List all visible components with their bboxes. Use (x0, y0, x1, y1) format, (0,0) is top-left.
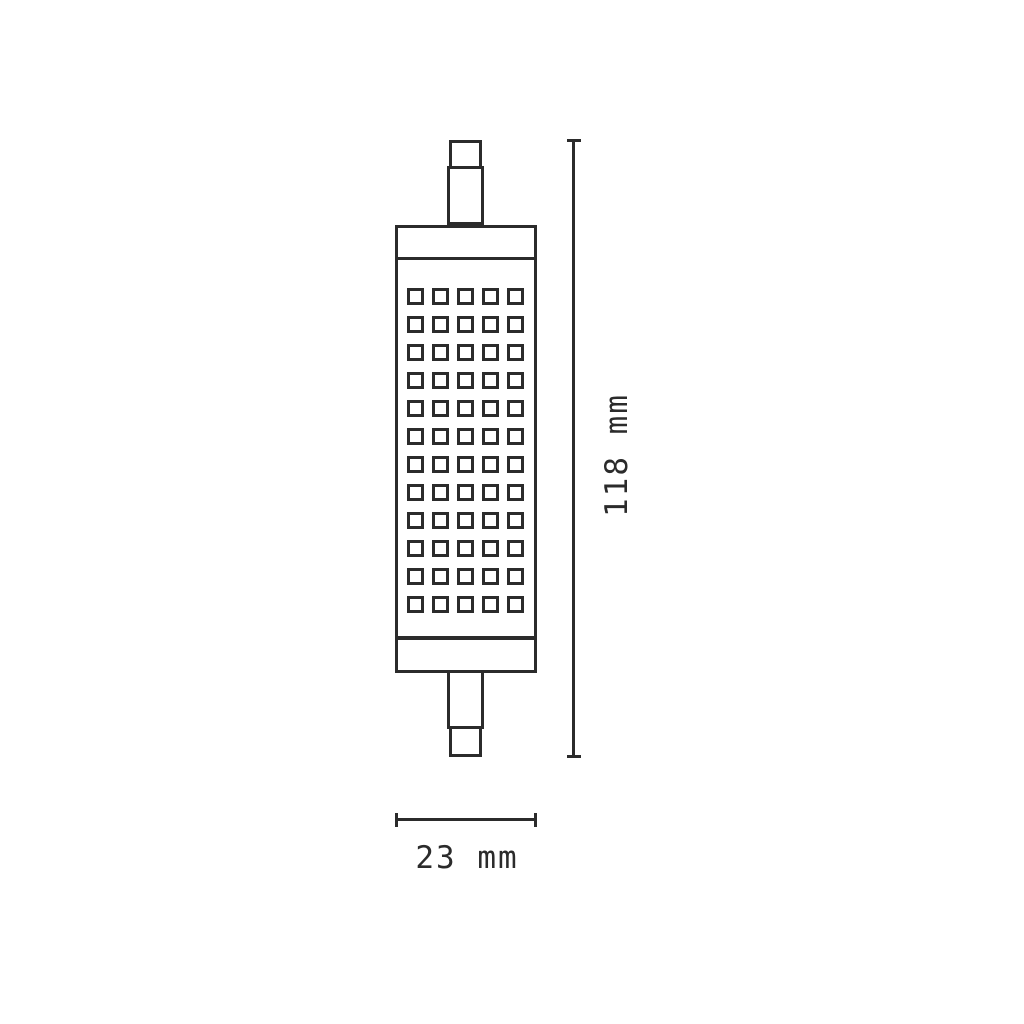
led-cell (482, 372, 499, 389)
diagram-canvas: 118 mm 23 mm (0, 0, 1024, 1024)
led-cell (457, 372, 474, 389)
led-cell (507, 428, 524, 445)
led-cell (407, 288, 424, 305)
led-cell (407, 512, 424, 529)
led-cell (407, 344, 424, 361)
led-cell (432, 540, 449, 557)
led-cell (507, 596, 524, 613)
led-cell (507, 540, 524, 557)
led-cell (507, 484, 524, 501)
led-cell (432, 568, 449, 585)
led-cell (482, 344, 499, 361)
led-cell (482, 428, 499, 445)
width-dim-line (396, 818, 536, 821)
led-cell (407, 456, 424, 473)
led-cell (457, 596, 474, 613)
led-cell (432, 456, 449, 473)
height-dim-label: 118 mm (599, 393, 635, 517)
led-cell (482, 316, 499, 333)
led-cell (482, 456, 499, 473)
led-cell (507, 288, 524, 305)
led-cell (407, 540, 424, 557)
lamp-bottom-pin-base (447, 670, 484, 729)
led-cell (507, 400, 524, 417)
lamp-top-pin-base (447, 166, 484, 225)
lamp-bottom-cap (395, 637, 537, 673)
led-cell (482, 484, 499, 501)
led-cell (482, 540, 499, 557)
led-cell (482, 568, 499, 585)
height-dim-line (572, 140, 575, 757)
led-cell (507, 512, 524, 529)
led-cell (507, 568, 524, 585)
led-cell (482, 512, 499, 529)
led-cell (407, 484, 424, 501)
led-cell (407, 568, 424, 585)
led-cell (432, 512, 449, 529)
led-cell (407, 428, 424, 445)
width-dim-label: 23 mm (415, 840, 518, 876)
led-cell (407, 372, 424, 389)
led-cell (432, 400, 449, 417)
led-cell (432, 596, 449, 613)
led-cell (482, 400, 499, 417)
led-cell (457, 288, 474, 305)
led-cell (432, 344, 449, 361)
led-grid (407, 288, 524, 613)
led-cell (507, 372, 524, 389)
led-cell (432, 372, 449, 389)
lamp-top-cap (395, 225, 537, 260)
height-dim-tick-bottom (567, 755, 581, 758)
led-cell (457, 512, 474, 529)
led-cell (457, 568, 474, 585)
led-cell (432, 316, 449, 333)
led-cell (457, 400, 474, 417)
led-cell (407, 400, 424, 417)
led-cell (407, 316, 424, 333)
led-cell (457, 540, 474, 557)
led-cell (432, 484, 449, 501)
lamp-bottom-pin-tip (449, 726, 482, 757)
width-dim-tick-right (534, 813, 537, 827)
led-cell (507, 344, 524, 361)
led-cell (507, 316, 524, 333)
led-cell (407, 596, 424, 613)
led-cell (432, 428, 449, 445)
led-cell (457, 484, 474, 501)
led-cell (507, 456, 524, 473)
led-cell (457, 456, 474, 473)
led-cell (482, 596, 499, 613)
led-cell (457, 344, 474, 361)
led-cell (432, 288, 449, 305)
lamp-top-pin-tip (449, 140, 482, 169)
led-cell (457, 428, 474, 445)
led-cell (482, 288, 499, 305)
led-cell (457, 316, 474, 333)
